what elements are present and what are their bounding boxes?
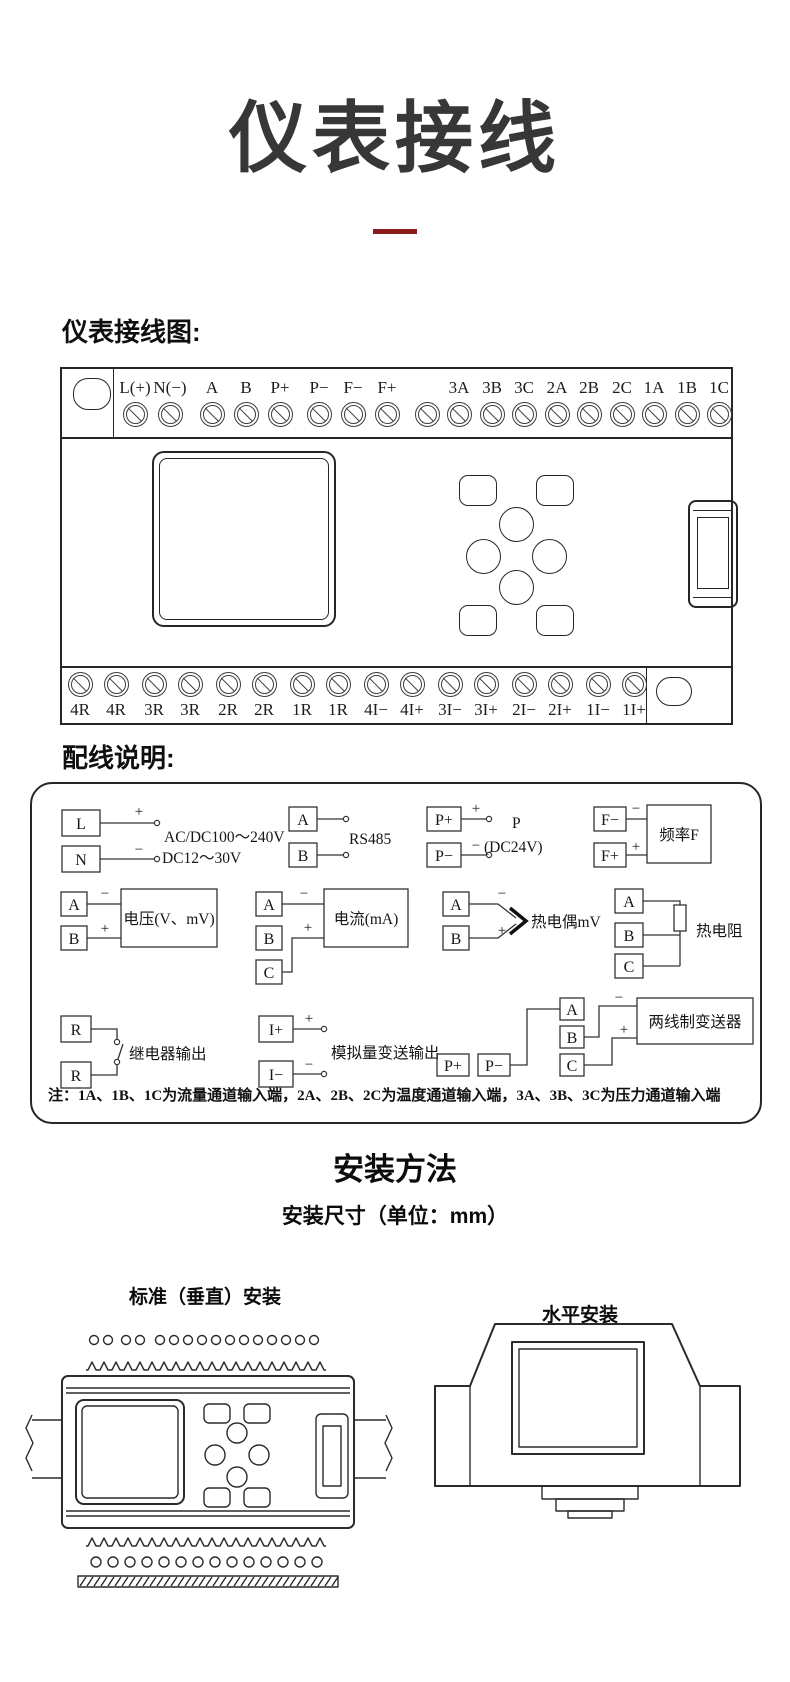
voltage-wiring-diagram: A − 电压(V、mV) B + — [57, 884, 257, 966]
svg-text:−: − — [632, 801, 640, 817]
terminal-bottom: 4R — [63, 670, 97, 722]
svg-text:P+: P+ — [435, 812, 453, 829]
terminal-bottom: 3R — [137, 670, 171, 722]
display-window — [512, 1342, 644, 1454]
terminal-label: 3R — [173, 697, 207, 722]
terminal-bottom: 3R — [173, 670, 207, 722]
title-underline-accent — [373, 229, 417, 234]
din-clip — [542, 1486, 638, 1499]
terminal-label: 1R — [321, 697, 355, 722]
terminal-label: 1R — [285, 697, 319, 722]
wiring-diagram-heading: 仪表接线图: — [62, 312, 201, 349]
svg-text:RS485: RS485 — [349, 831, 391, 848]
terminal-label: 4I− — [359, 697, 393, 722]
svg-text:N: N — [75, 852, 87, 869]
screw-icon — [68, 672, 93, 697]
screw-icon — [104, 672, 129, 697]
frequency-wiring-diagram: F− − 频率F F+ + — [590, 802, 765, 880]
svg-text:P−: P− — [485, 1058, 503, 1075]
svg-text:B: B — [567, 1030, 578, 1047]
product-wiring-page: { "page": { "title": "仪表接线", "wiring_dia… — [0, 0, 790, 1682]
thermocouple-wiring-diagram: A − B + 热电偶mV — [440, 884, 622, 966]
svg-text:B: B — [298, 848, 309, 865]
rtd-wiring-diagram: A B C 热电阻 — [612, 879, 767, 994]
svg-text:+: + — [620, 1022, 628, 1038]
svg-text:A: A — [623, 894, 635, 911]
current-wiring-diagram: A − 电流(mA) B C + — [254, 884, 444, 996]
terminal-label: 2R — [211, 697, 245, 722]
svg-text:+: + — [632, 839, 640, 855]
screw-icon — [622, 672, 647, 697]
terminal-label: 1I+ — [617, 697, 651, 722]
wiring-notes-heading: 配线说明: — [62, 738, 175, 775]
screw-icon — [474, 672, 499, 697]
svg-text:电压(V、mV): 电压(V、mV) — [123, 910, 214, 928]
terminal-bottom: 2I+ — [543, 670, 577, 722]
lcd-screen-small — [76, 1400, 184, 1504]
terminal-label: 3I+ — [469, 697, 503, 722]
svg-text:−: − — [615, 990, 623, 1006]
svg-text:P: P — [512, 815, 521, 832]
svg-text:A: A — [450, 897, 462, 914]
terminal-bottom: 4R — [99, 670, 133, 722]
svg-text:继电器输出: 继电器输出 — [129, 1045, 207, 1063]
svg-text:−: − — [472, 838, 480, 854]
svg-text:+: + — [498, 923, 506, 939]
svg-text:−: − — [300, 886, 308, 902]
svg-text:+: + — [304, 920, 312, 936]
svg-text:R: R — [71, 1068, 82, 1085]
bottom-terminal-row: 4R4R3R3R2R2R1R1R4I−4I+3I−3I+2I−2I+1I−1I+ — [62, 369, 731, 723]
svg-text:−: − — [305, 1057, 313, 1073]
svg-text:C: C — [624, 959, 635, 976]
terminal-label: 3R — [137, 697, 171, 722]
svg-text:P−: P− — [435, 848, 453, 865]
screw-icon — [512, 672, 537, 697]
svg-text:+: + — [135, 804, 143, 820]
svg-text:B: B — [451, 931, 462, 948]
svg-text:频率F: 频率F — [659, 826, 699, 844]
terminal-bottom: 2R — [247, 670, 281, 722]
screw-icon — [178, 672, 203, 697]
terminal-label: 4R — [63, 697, 97, 722]
svg-text:+: + — [472, 801, 480, 817]
terminal-bottom: 3I+ — [469, 670, 503, 722]
svg-text:I−: I− — [269, 1067, 283, 1084]
svg-text:−: − — [135, 842, 143, 858]
dc24v-wiring-diagram: P+ + P P− − (DC24V) — [422, 802, 557, 880]
terminal-bottom: 1R — [321, 670, 355, 722]
terminal-bottom: 4I+ — [395, 670, 429, 722]
svg-text:B: B — [624, 928, 635, 945]
terminal-bottom: 1I− — [581, 670, 615, 722]
terminal-bottom: 4I− — [359, 670, 393, 722]
terminal-label: 1I− — [581, 697, 615, 722]
svg-text:+: + — [305, 1011, 313, 1027]
screw-icon — [290, 672, 315, 697]
svg-text:A: A — [68, 897, 80, 914]
svg-text:热电偶mV: 热电偶mV — [531, 913, 602, 931]
svg-text:C: C — [567, 1058, 578, 1075]
function-button-small — [244, 1488, 270, 1507]
terminal-bottom: 3I− — [433, 670, 467, 722]
svg-text:I+: I+ — [269, 1022, 283, 1039]
terminal-bottom: 1R — [285, 670, 319, 722]
screw-icon — [216, 672, 241, 697]
svg-text:P+: P+ — [444, 1058, 462, 1075]
terminal-bottom: 2R — [211, 670, 245, 722]
screw-icon — [326, 672, 351, 697]
install-method-title: 安装方法 — [0, 1144, 790, 1189]
power-wiring-diagram: L + AC/DC100～240V N − DC12～30V — [54, 802, 299, 880]
right-button-small — [249, 1445, 269, 1465]
screw-icon — [438, 672, 463, 697]
screw-icon — [142, 672, 167, 697]
svg-text:A: A — [566, 1002, 578, 1019]
screw-icon — [252, 672, 277, 697]
svg-text:B: B — [264, 931, 275, 948]
horizontal-install-drawing — [430, 1316, 745, 1536]
terminal-block-diagram: L(+)N(−)ABP+P−F−F+3A3B3C2A2B2C1A1B1C 4R4… — [60, 367, 733, 725]
terminal-bottom: 2I− — [507, 670, 541, 722]
screw-icon — [586, 672, 611, 697]
terminal-label: 2I− — [507, 697, 541, 722]
svg-text:A: A — [263, 897, 275, 914]
svg-text:F−: F− — [601, 812, 619, 829]
svg-text:(DC24V): (DC24V) — [484, 839, 543, 856]
svg-text:A: A — [297, 812, 309, 829]
terminal-label: 3I− — [433, 697, 467, 722]
svg-text:两线制变送器: 两线制变送器 — [648, 1013, 742, 1031]
svg-text:电流(mA): 电流(mA) — [334, 910, 399, 928]
screw-icon — [548, 672, 573, 697]
svg-text:F+: F+ — [601, 848, 619, 865]
transmitter-wiring-diagram: A B C P+ P− 两线制变送器 − + — [427, 994, 762, 1094]
rs485-wiring-diagram: A B RS485 — [285, 802, 425, 880]
svg-text:+: + — [101, 921, 109, 937]
svg-text:−: − — [101, 886, 109, 902]
terminal-label: 2R — [247, 697, 281, 722]
wiring-notes-box: L + AC/DC100～240V N − DC12～30V A B RS485… — [30, 782, 762, 1124]
svg-text:C: C — [264, 965, 275, 982]
svg-text:−: − — [498, 886, 506, 902]
left-button-small — [205, 1445, 225, 1465]
vertical-install-drawing — [22, 1328, 397, 1596]
screw-icon — [364, 672, 389, 697]
svg-text:R: R — [71, 1022, 82, 1039]
up-button-small — [227, 1423, 247, 1443]
function-button-small — [204, 1488, 230, 1507]
function-button-small — [204, 1404, 230, 1423]
screw-icon — [400, 672, 425, 697]
din-rail — [32, 1420, 386, 1478]
svg-text:DC12～30V: DC12～30V — [162, 850, 242, 867]
vertical-install-label: 标准（垂直）安装 — [100, 1282, 310, 1309]
terminal-label: 2I+ — [543, 697, 577, 722]
function-button-small — [244, 1404, 270, 1423]
svg-text:模拟量变送输出: 模拟量变送输出 — [331, 1044, 440, 1062]
svg-text:B: B — [69, 931, 80, 948]
install-size-subtitle: 安装尺寸（单位：mm） — [0, 1200, 790, 1230]
terminal-label: 4I+ — [395, 697, 429, 722]
terminal-bottom: 1I+ — [617, 670, 651, 722]
device-body — [62, 1376, 354, 1528]
terminal-label: 4R — [99, 697, 133, 722]
page-title: 仪表接线 — [0, 76, 790, 188]
channel-note: 注：1A、1B、1C为流量通道输入端，2A、2B、2C为温度通道输入端，3A、3… — [48, 1084, 752, 1105]
svg-text:AC/DC100～240V: AC/DC100～240V — [164, 829, 285, 846]
down-button-small — [227, 1467, 247, 1487]
svg-text:L: L — [76, 816, 86, 833]
svg-text:热电阻: 热电阻 — [696, 922, 743, 940]
